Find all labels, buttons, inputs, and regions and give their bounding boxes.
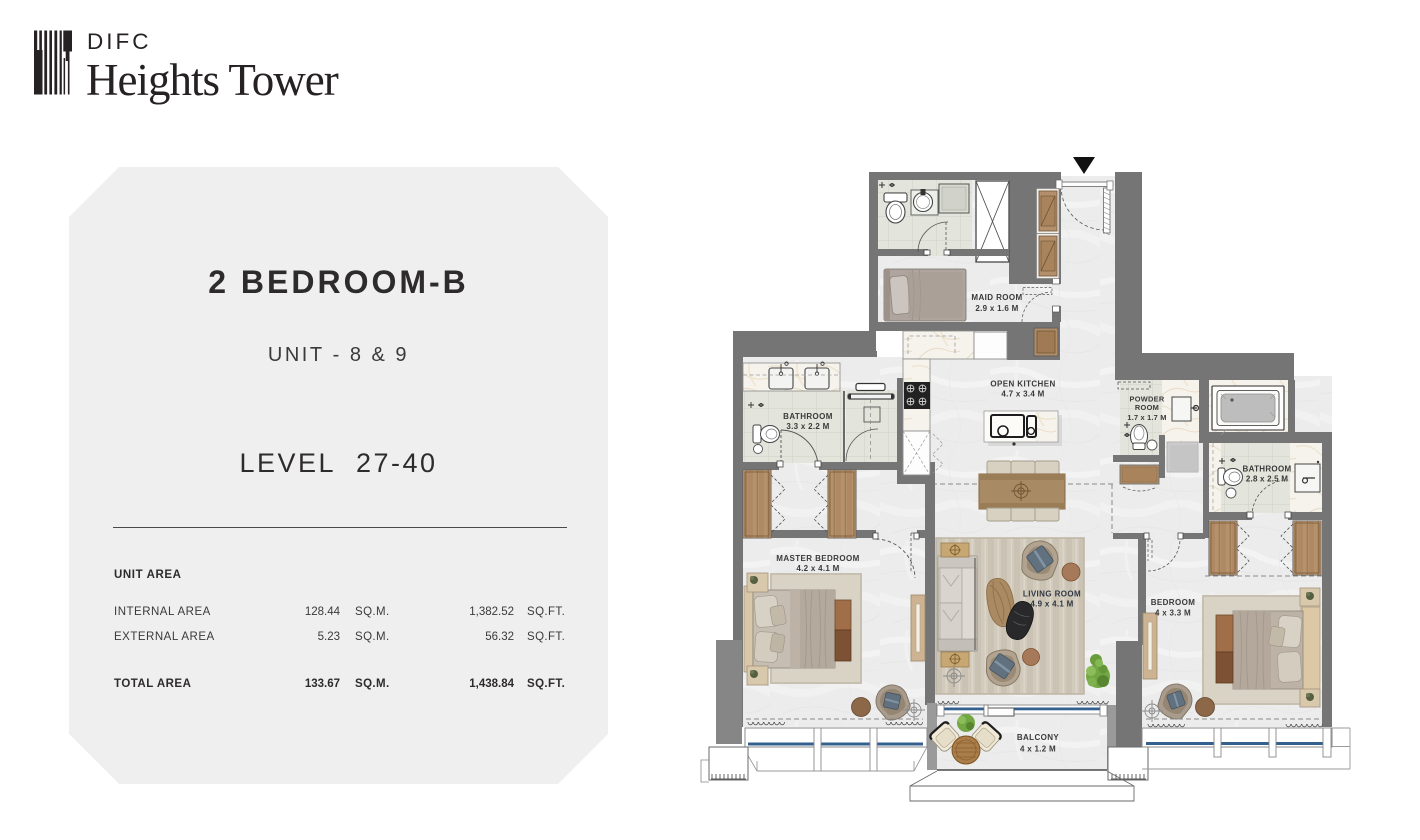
svg-text:ROOM: ROOM (1135, 403, 1159, 412)
svg-text:4.7 x 3.4 M: 4.7 x 3.4 M (1001, 390, 1044, 399)
svg-text:BALCONY: BALCONY (1017, 733, 1060, 742)
svg-text:MASTER BEDROOM: MASTER BEDROOM (776, 554, 859, 563)
svg-text:3.3 x 2.2 M: 3.3 x 2.2 M (786, 422, 829, 431)
svg-text:BEDROOM: BEDROOM (1151, 598, 1196, 607)
svg-text:4 x 3.3 M: 4 x 3.3 M (1155, 609, 1191, 618)
svg-text:4.2 x 4.1 M: 4.2 x 4.1 M (796, 564, 839, 573)
svg-text:MAID ROOM: MAID ROOM (971, 293, 1022, 302)
svg-text:BATHROOM: BATHROOM (783, 412, 833, 421)
svg-text:BATHROOM: BATHROOM (1243, 465, 1292, 474)
svg-text:4 x 1.2 M: 4 x 1.2 M (1020, 745, 1056, 754)
svg-text:1.7 x 1.7 M: 1.7 x 1.7 M (1127, 413, 1166, 422)
svg-text:LIVING ROOM: LIVING ROOM (1023, 590, 1081, 599)
svg-text:2.9 x 1.6 M: 2.9 x 1.6 M (975, 304, 1018, 313)
svg-text:OPEN KITCHEN: OPEN KITCHEN (990, 380, 1055, 389)
svg-text:4.9 x 4.1 M: 4.9 x 4.1 M (1030, 600, 1073, 609)
svg-text:2.8 x 2.5 M: 2.8 x 2.5 M (1246, 475, 1288, 484)
